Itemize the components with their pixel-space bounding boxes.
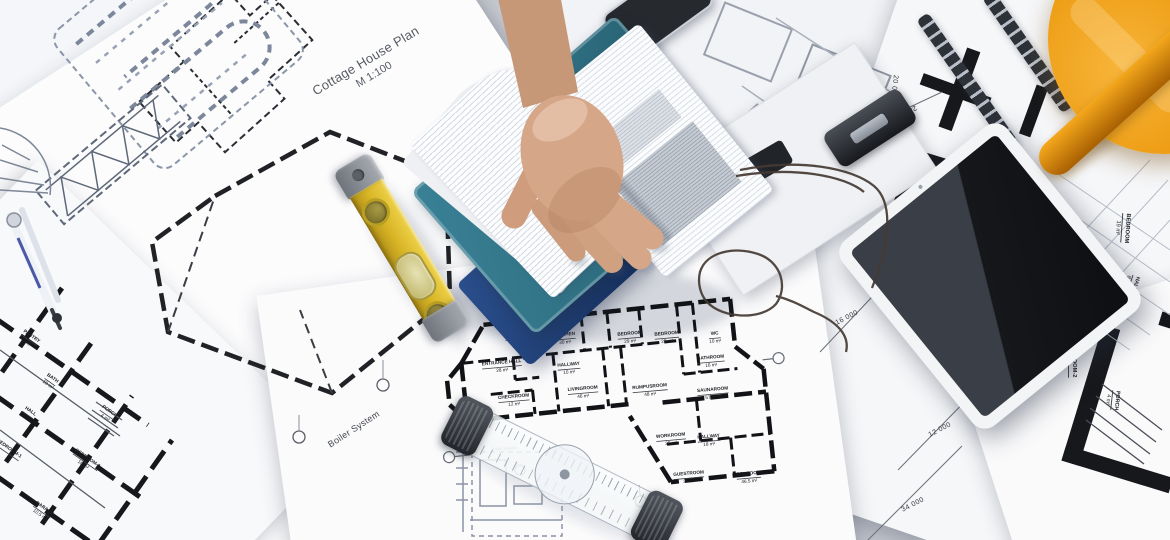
room-label: GUESTROOM27 m² — [673, 470, 705, 485]
room-label: HALLWAY10 m² — [557, 362, 580, 377]
room-label: WC10 m² — [708, 331, 721, 345]
room-label: HALLWAY18 m² — [697, 434, 720, 449]
room-label: RUMPUSROOM48 m² — [632, 383, 668, 399]
room-label: WORKROOM20 m² — [656, 432, 686, 447]
room-label: BEDROOM19 m² — [1113, 213, 1131, 244]
room-label: PORCH4 m² — [1104, 390, 1121, 411]
room-label: BEDROOM46.5 m² — [736, 471, 761, 486]
room-label: BEDROOM29 m² — [617, 331, 642, 346]
room-label: CHECKROOM12 m² — [498, 393, 530, 408]
room-label: SAUNAROOM57.5 m² — [697, 386, 729, 401]
room-label: ENTRANCE HALL28 m² — [482, 359, 523, 375]
photo-architect-desk: Cottage House Plan M 1:100 Boiler System… — [0, 0, 1170, 540]
room-label: BATHROOM16 m² — [697, 354, 725, 369]
clip-metal-tab — [849, 113, 889, 145]
tablet-camera — [918, 184, 924, 190]
room-label: BEDROOM28 m² — [654, 331, 679, 346]
room-label: LIVINGROOM46 m² — [567, 385, 598, 400]
spirit-level-hole — [350, 167, 366, 183]
